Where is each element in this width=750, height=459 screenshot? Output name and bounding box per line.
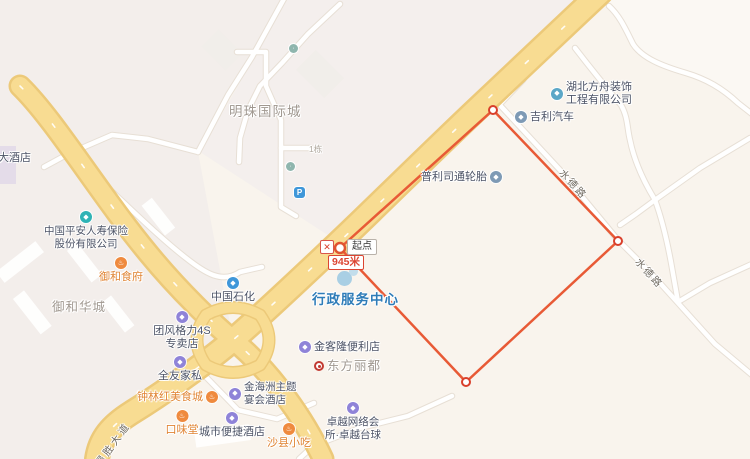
poi-yuhe-restaurant[interactable]: ♨ 御和食府	[99, 257, 143, 284]
measure-close-button[interactable]: ✕	[320, 240, 334, 254]
gas-station-icon: ◆	[227, 277, 239, 289]
poi-admin-service-center[interactable]: 行政服务中心	[312, 288, 399, 308]
restaurant-icon: ♨	[283, 423, 295, 435]
restaurant-icon: ♨	[115, 257, 127, 269]
area-label-yuhehuacheng: 御和华城	[52, 296, 106, 315]
poi-jinkelong-store[interactable]: ◆ 金客隆便利店	[299, 341, 380, 354]
poi-city-comfort-inn[interactable]: ◆ 城市便捷酒店	[199, 412, 265, 439]
poi-geely-auto[interactable]: ◆ 吉利汽车	[515, 111, 574, 124]
poi-gree-store[interactable]: ◆ 团风格力4S专卖店	[153, 311, 210, 350]
measure-start-label: 起点	[347, 239, 377, 255]
map-canvas[interactable]: ◆ 中国平安人寿保险股份有限公司 ◆ 中国石化 ♨ 御和食府 ◆ 团风格力4S专…	[0, 0, 750, 459]
shop-icon: ◆	[174, 356, 186, 368]
poi-jinhaizhou-hotel[interactable]: ◆ 金海洲主题宴会酒店	[229, 381, 297, 406]
poi-zhuoyue-club[interactable]: ◆ 卓越网络会所·卓越台球	[325, 402, 381, 441]
poi-pingan-insurance[interactable]: ◆ 中国平安人寿保险股份有限公司	[44, 211, 128, 250]
poi-fangzhou-decoration[interactable]: ◆ 湖北方舟装饰工程有限公司	[551, 81, 632, 106]
hotel-icon: ◆	[229, 388, 241, 400]
building-number-label: 1栋	[309, 143, 322, 155]
area-label-mingzhu: 明珠国际城	[229, 100, 302, 120]
entrance-icon: ·	[286, 162, 295, 171]
company-icon: ◆	[551, 88, 563, 100]
billiards-icon: ◆	[347, 402, 359, 414]
tire-icon: ◆	[490, 171, 502, 183]
residential-icon	[314, 361, 324, 371]
poi-zhonglin-food-city[interactable]: 钟林红美食城 ♨	[137, 391, 218, 404]
restaurant-icon: ♨	[206, 391, 218, 403]
poi-bridgestone-tires[interactable]: 普利司通轮胎 ◆	[421, 171, 502, 184]
poi-hotel-partial[interactable]: ◆ 大酒店	[0, 152, 31, 165]
parking-icon: P	[294, 187, 305, 198]
car-icon: ◆	[515, 111, 527, 123]
shop-icon: ◆	[176, 311, 188, 323]
insurance-icon: ◆	[80, 211, 92, 223]
poi-kouweitang[interactable]: ♨ 口味堂	[166, 410, 199, 437]
poi-shaxian-snacks[interactable]: ♨ 沙县小吃	[267, 423, 311, 450]
poi-quanyou-furniture[interactable]: ◆ 全友家私	[158, 356, 202, 383]
restaurant-icon: ♨	[176, 410, 188, 422]
hotel-icon: ◆	[226, 412, 238, 424]
entrance-icon: ·	[289, 44, 298, 53]
measure-distance-label: 945米	[328, 255, 364, 270]
shop-icon: ◆	[299, 341, 311, 353]
poi-sinopec[interactable]: ◆ 中国石化	[211, 277, 255, 304]
poi-dongfanglidu[interactable]: 东方丽都	[314, 360, 381, 373]
